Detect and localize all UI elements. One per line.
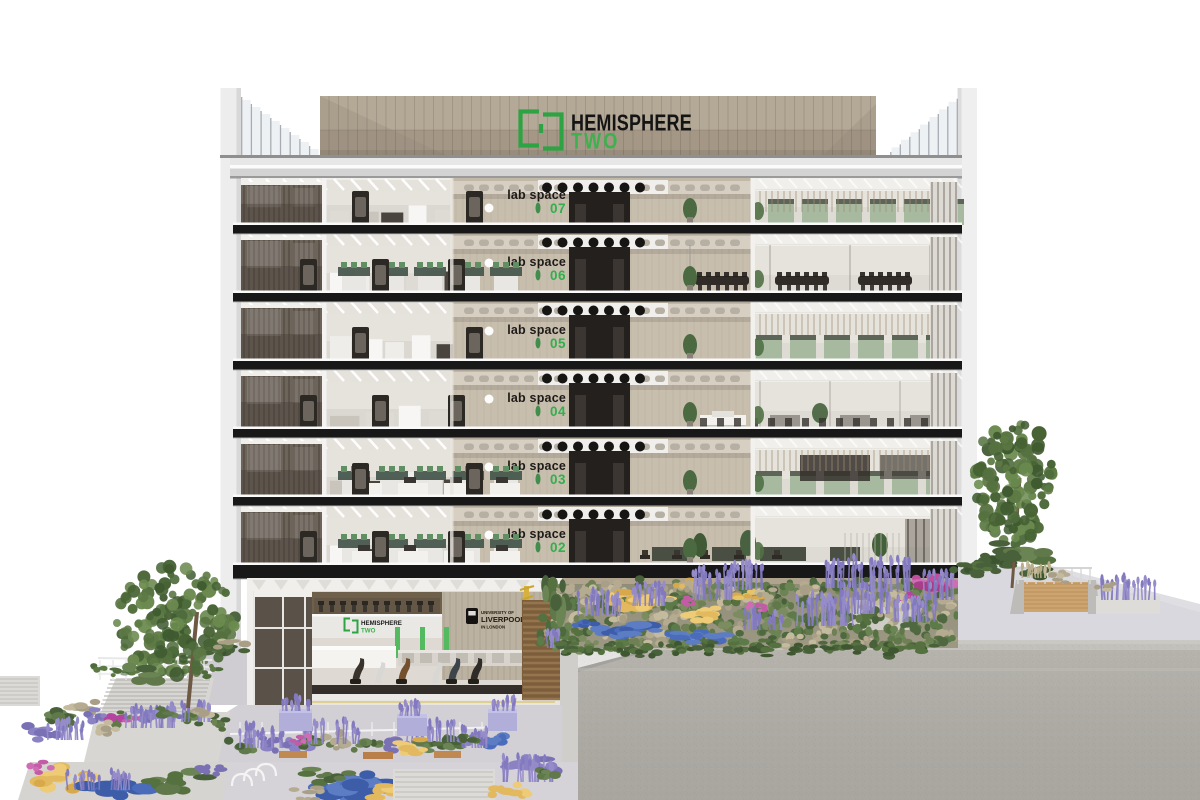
- svg-text:05: 05: [550, 336, 566, 351]
- svg-text:03: 03: [550, 472, 566, 487]
- svg-text:06: 06: [550, 268, 566, 283]
- svg-text:LIVERPOOL: LIVERPOOL: [481, 615, 525, 624]
- svg-text:lab space: lab space: [507, 391, 566, 405]
- svg-text:lab space: lab space: [507, 323, 566, 337]
- svg-text:07: 07: [550, 201, 566, 216]
- svg-text:HEMISPHERE: HEMISPHERE: [361, 620, 402, 627]
- svg-text:04: 04: [550, 404, 566, 419]
- svg-text:TWO: TWO: [571, 130, 620, 154]
- svg-text:IN LONDON: IN LONDON: [481, 625, 505, 630]
- svg-text:lab space: lab space: [507, 188, 566, 202]
- svg-text:TWO: TWO: [361, 628, 376, 635]
- svg-text:02: 02: [550, 540, 566, 555]
